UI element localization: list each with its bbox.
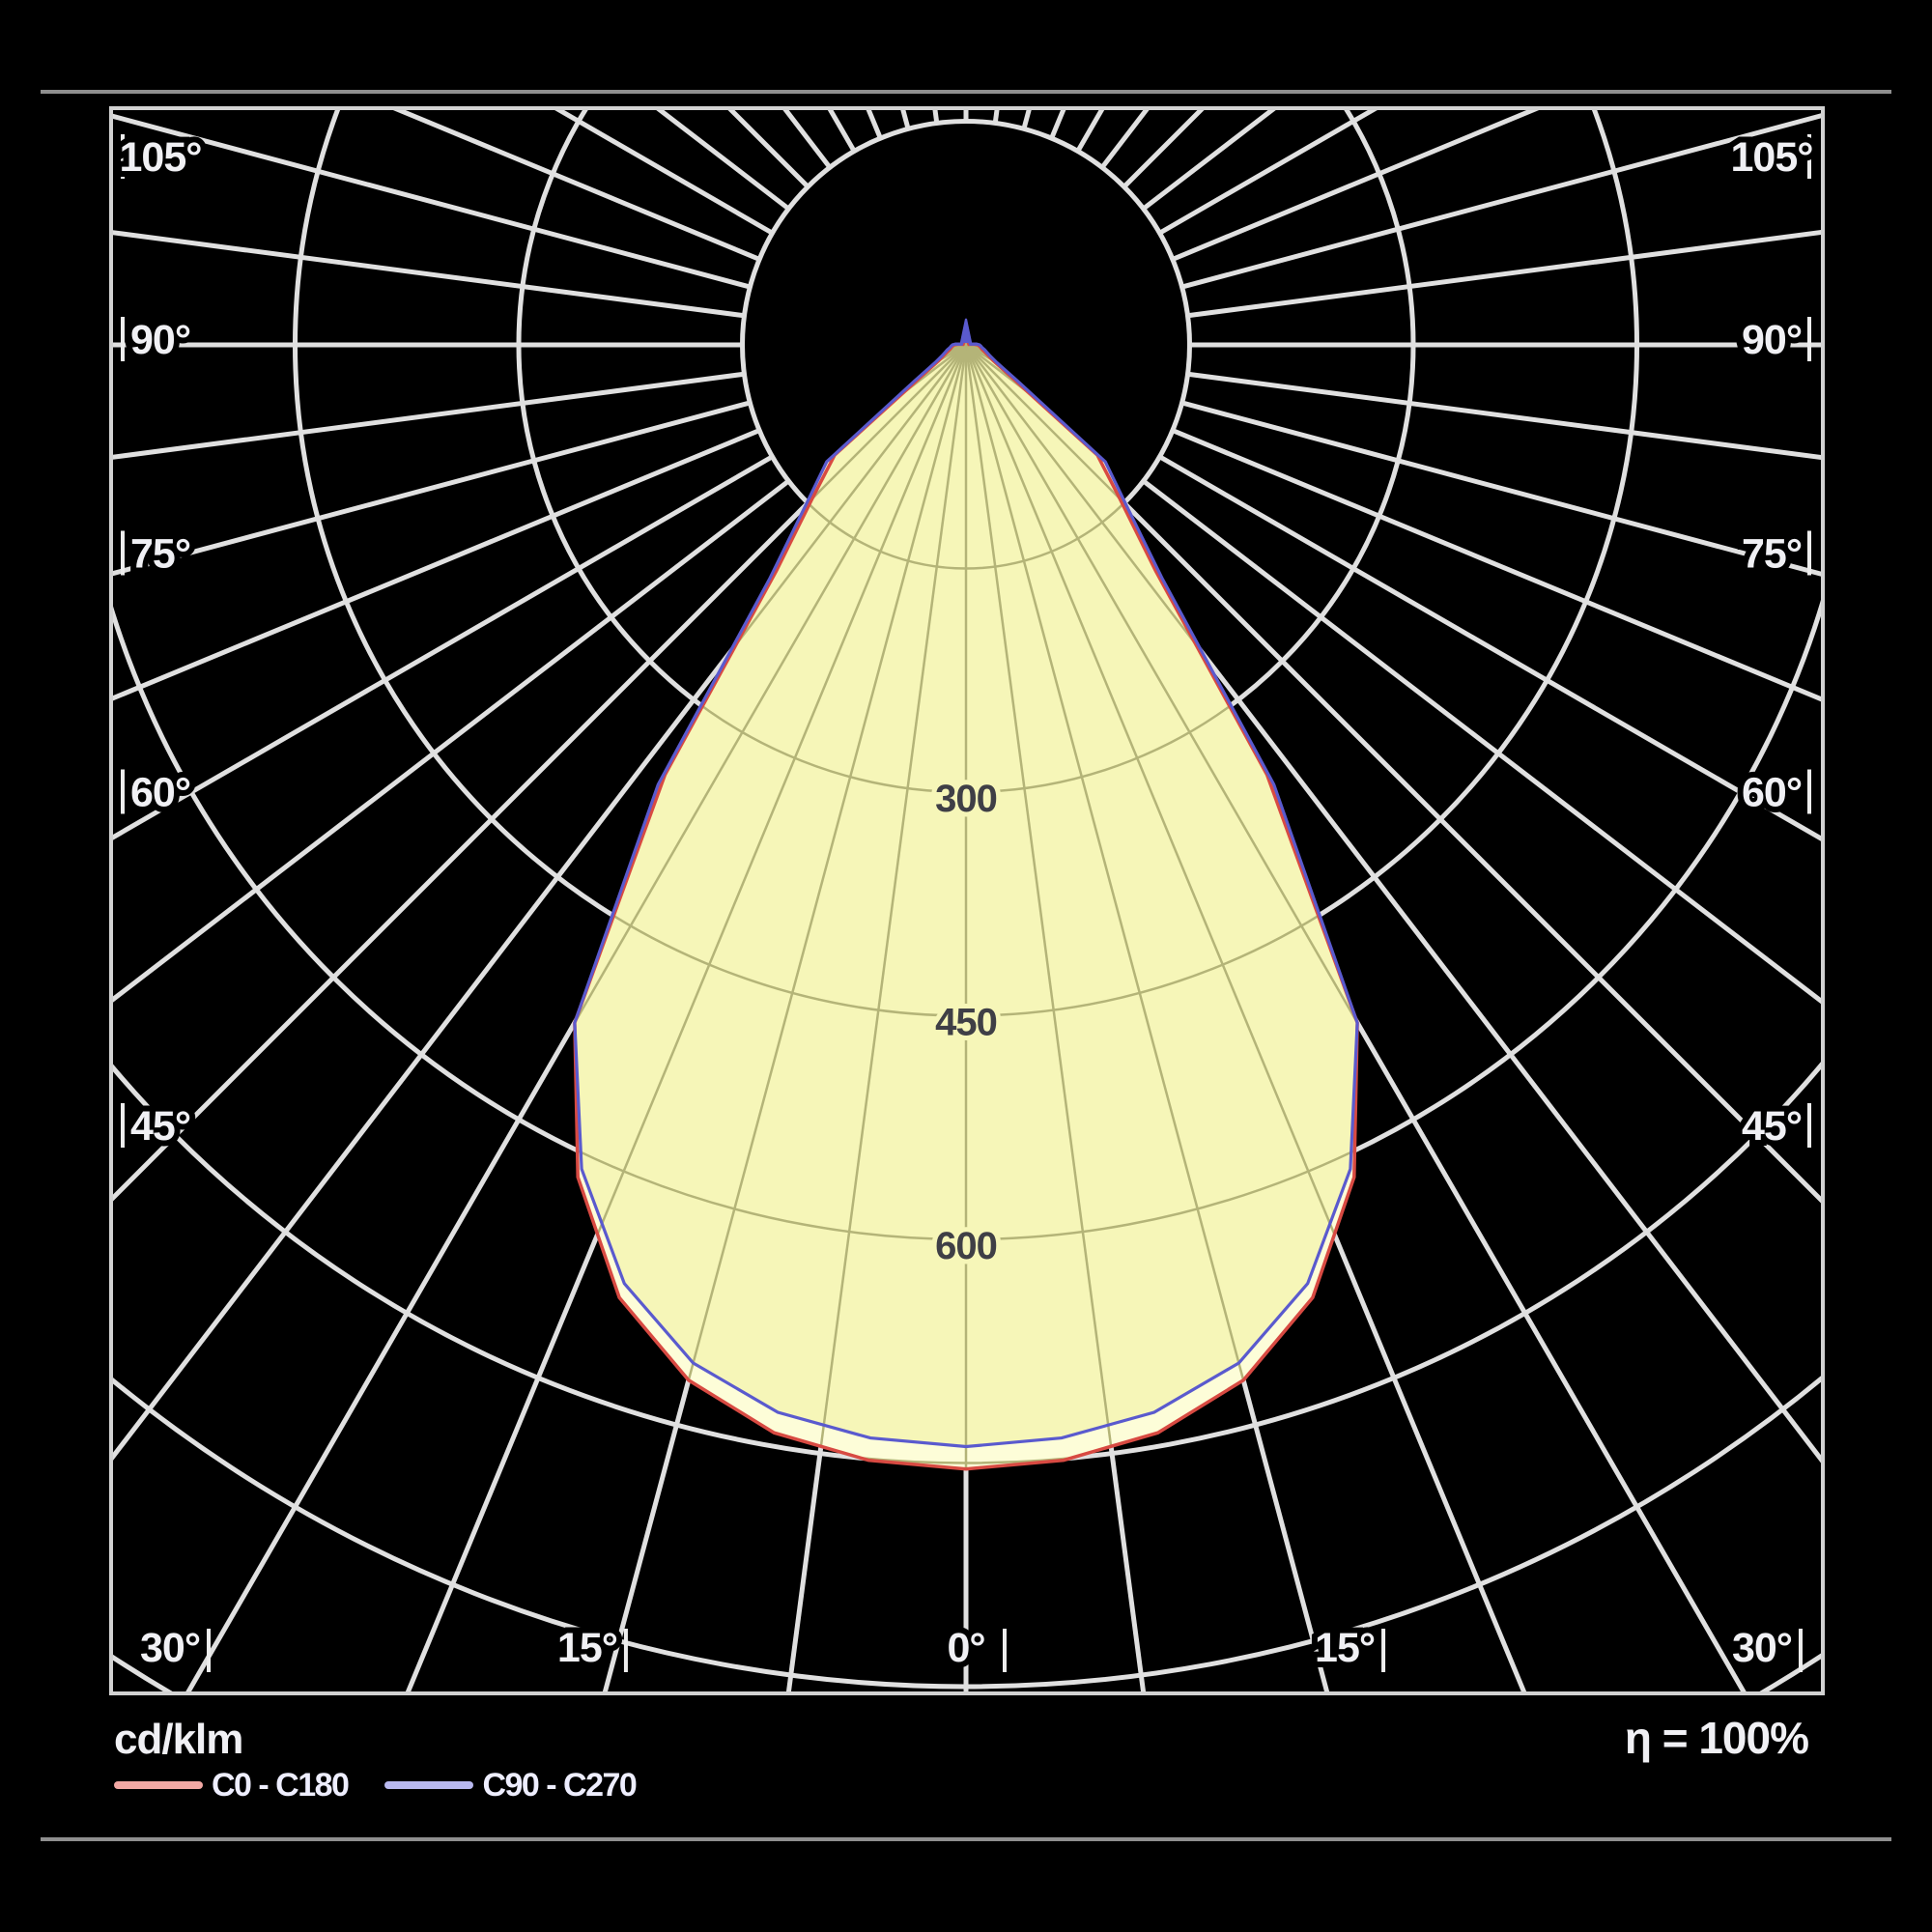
grid-spoke <box>966 0 1624 345</box>
angle-label-60: 60° <box>130 770 190 816</box>
polar-chart: 0°15°15°30°30°45°45°60°60°75°75°90°90°10… <box>0 0 1932 1932</box>
legend-label-c90-c270: C90 - C270 <box>482 1767 636 1804</box>
grid-spoke <box>995 0 1190 123</box>
angle-label-30: 30° <box>140 1625 200 1671</box>
legend-swatch-c90-c270 <box>384 1781 473 1789</box>
grid-spoke <box>1144 0 1932 209</box>
grid-spoke <box>1173 0 1932 259</box>
legend: C0 - C180 C90 - C270 <box>114 1766 636 1804</box>
angle-label-105: 105° <box>1731 134 1813 181</box>
radial-value-label-600: 600 <box>935 1225 997 1267</box>
grid-spoke <box>0 0 759 259</box>
angle-label-105: 105° <box>120 134 202 181</box>
angle-label-45: 45° <box>130 1103 190 1150</box>
efficiency-label: η = 100% <box>1625 1712 1808 1764</box>
radial-value-label-450: 450 <box>935 1002 997 1044</box>
photometric-diagram: 0°15°15°30°30°45°45°60°60°75°75°90°90°10… <box>0 0 1932 1932</box>
curve-tip-spike <box>961 319 971 342</box>
angle-label-0: 0° <box>947 1625 984 1671</box>
angle-label-90: 90° <box>130 317 190 363</box>
angle-label-15: 15° <box>1315 1625 1375 1671</box>
grid-spoke <box>308 0 966 345</box>
legend-swatch-c0-c180 <box>114 1781 203 1789</box>
grid-spoke <box>966 0 1190 345</box>
unit-label: cd/klm <box>114 1716 242 1764</box>
angle-label-75: 75° <box>130 530 190 577</box>
grid-spoke <box>0 0 788 209</box>
angle-label-75: 75° <box>1742 530 1802 577</box>
angle-label-30: 30° <box>1732 1625 1792 1671</box>
grid-spoke <box>966 0 1826 345</box>
angle-label-45: 45° <box>1742 1103 1802 1150</box>
grid-spoke <box>742 0 966 345</box>
grid-spoke <box>1078 0 1826 152</box>
grid-spoke <box>106 0 966 345</box>
angle-label-15: 15° <box>557 1625 617 1671</box>
grid-spoke <box>1182 0 1932 287</box>
angle-label-90: 90° <box>1742 317 1802 363</box>
grid-spoke <box>742 0 937 123</box>
angle-label-60: 60° <box>1742 770 1802 816</box>
radial-value-label-300: 300 <box>935 778 997 820</box>
legend-label-c0-c180: C0 - C180 <box>212 1767 348 1804</box>
grid-spoke <box>106 0 854 152</box>
